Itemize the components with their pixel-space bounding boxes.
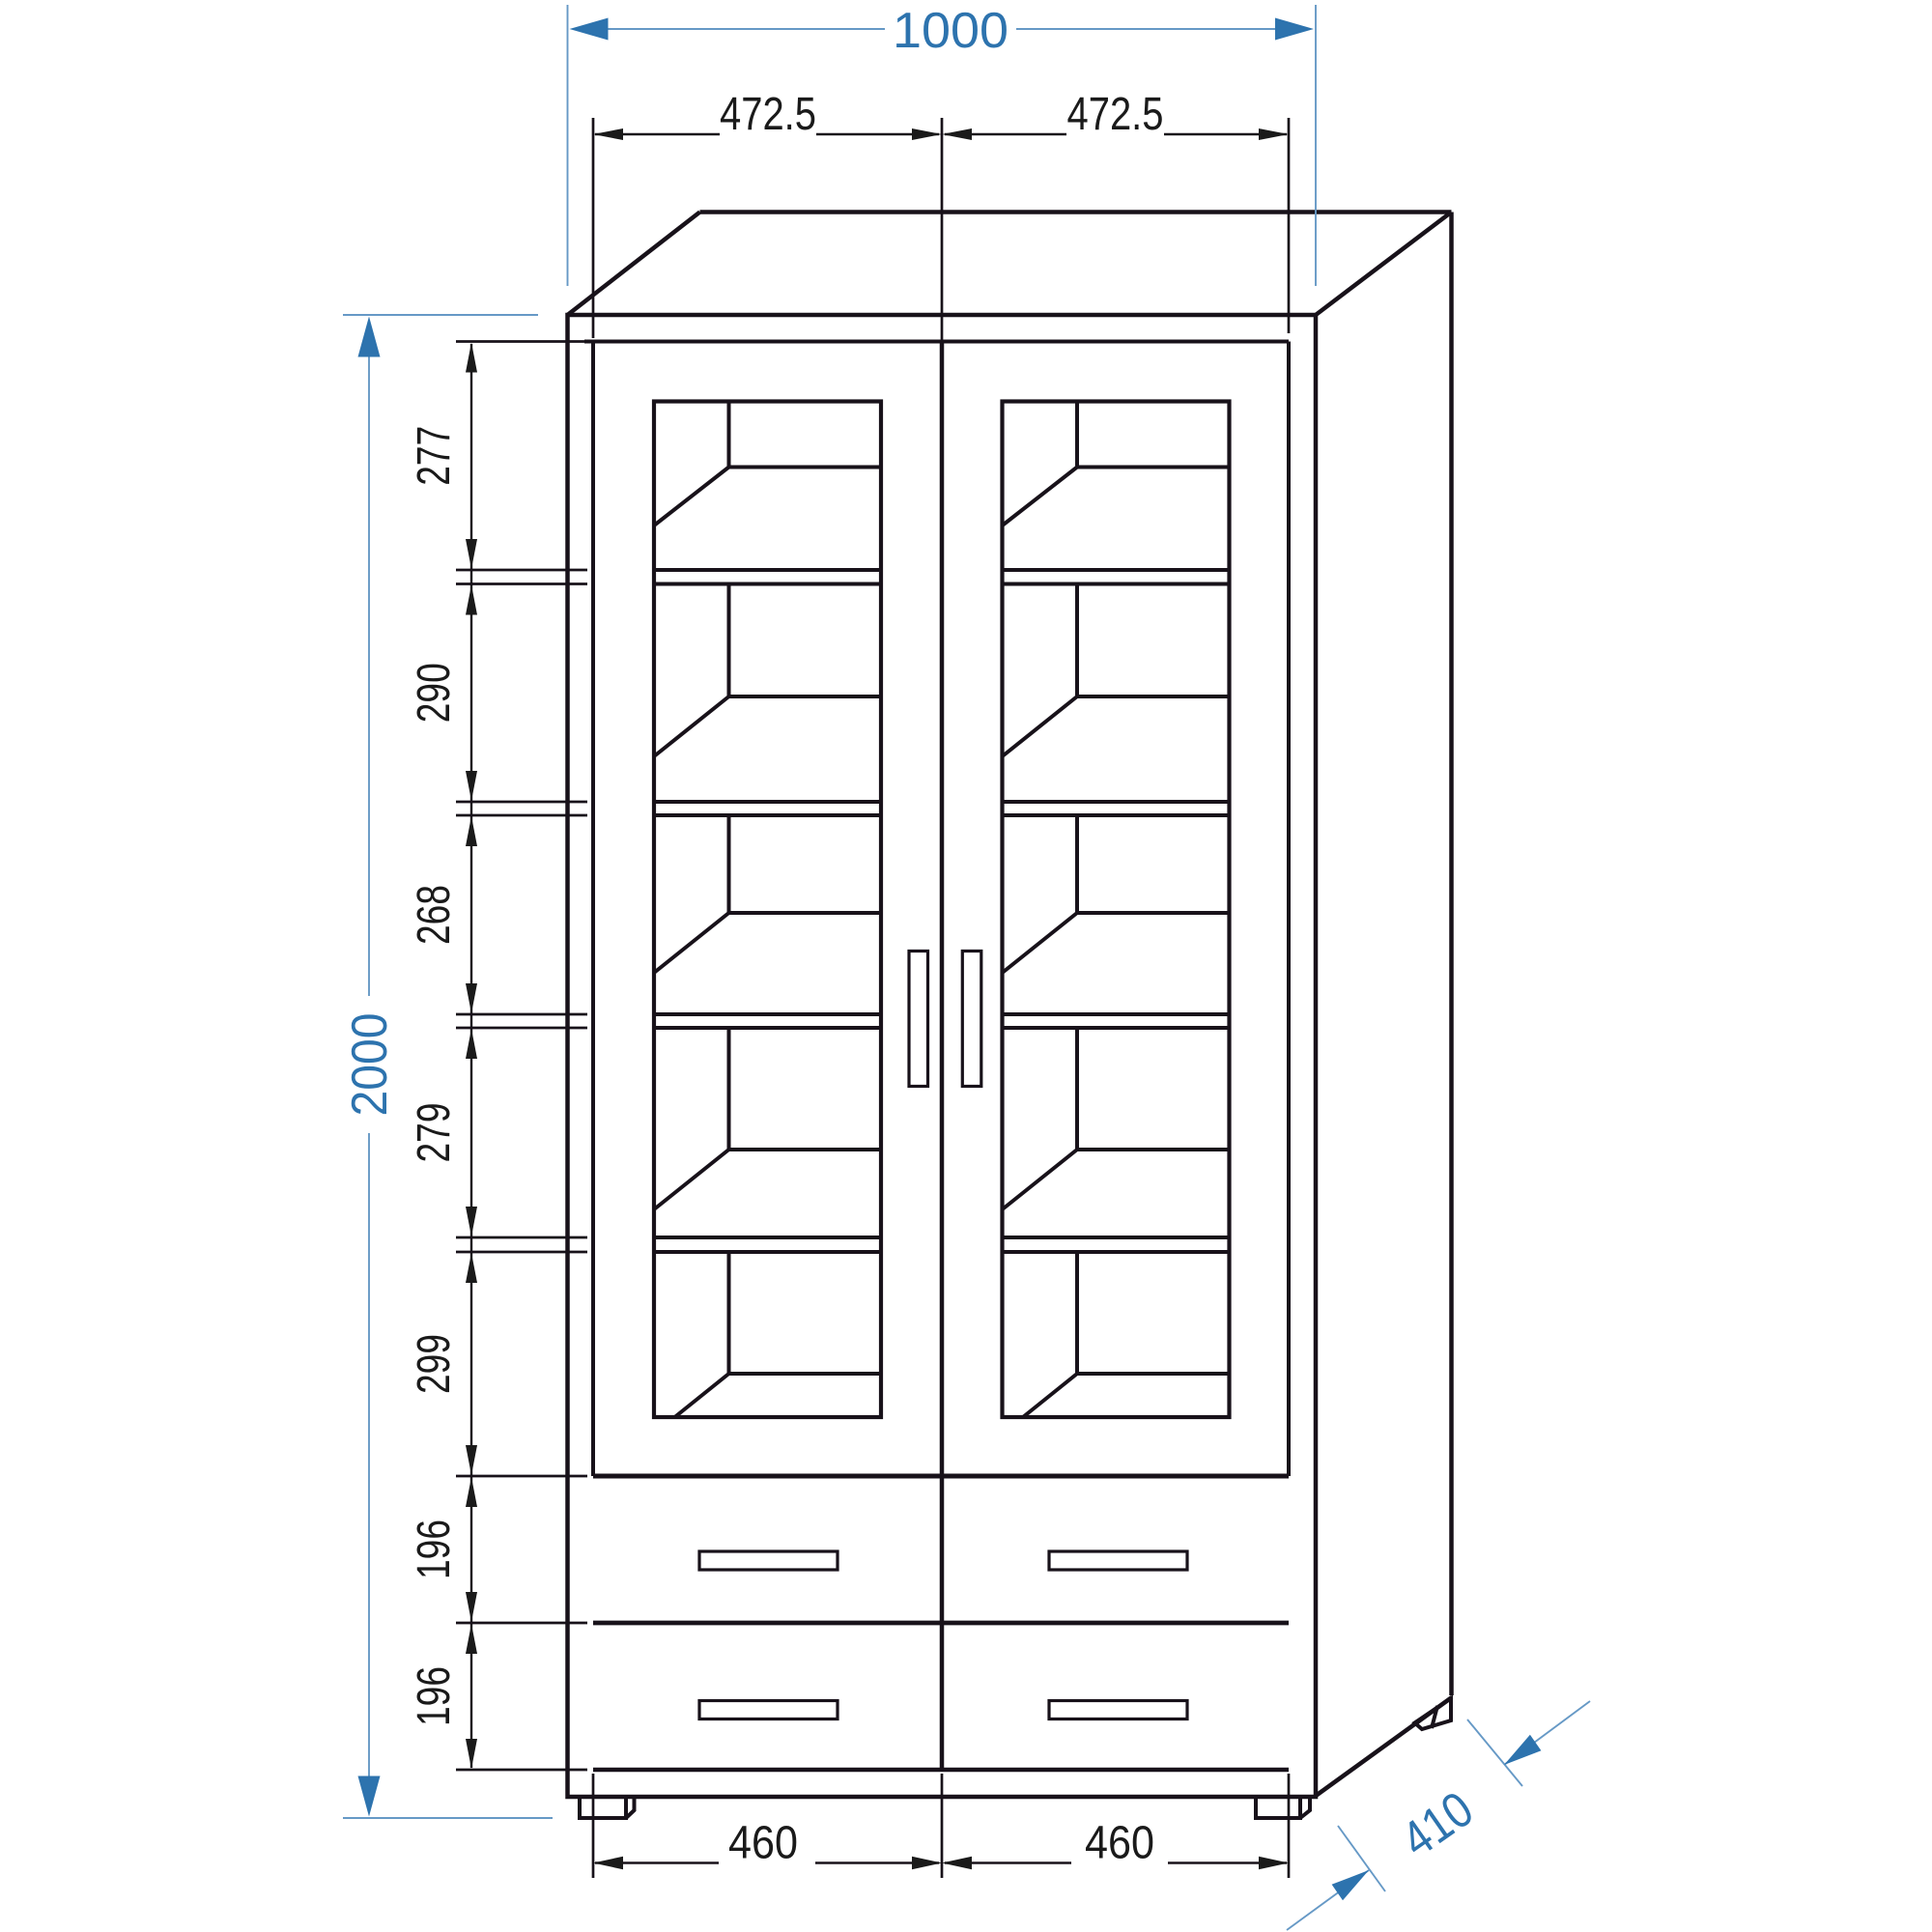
svg-text:299: 299	[409, 1334, 460, 1394]
svg-text:472.5: 472.5	[720, 89, 816, 140]
svg-text:472.5: 472.5	[1067, 89, 1164, 140]
svg-text:277: 277	[409, 426, 460, 486]
svg-text:2000: 2000	[342, 1013, 398, 1117]
svg-text:460: 460	[728, 1818, 798, 1869]
svg-text:196: 196	[409, 1666, 460, 1726]
svg-text:279: 279	[409, 1103, 460, 1163]
svg-text:268: 268	[409, 885, 460, 945]
svg-text:1000: 1000	[893, 3, 1009, 59]
svg-text:290: 290	[409, 663, 460, 723]
svg-text:196: 196	[409, 1520, 460, 1579]
svg-text:460: 460	[1085, 1818, 1154, 1869]
